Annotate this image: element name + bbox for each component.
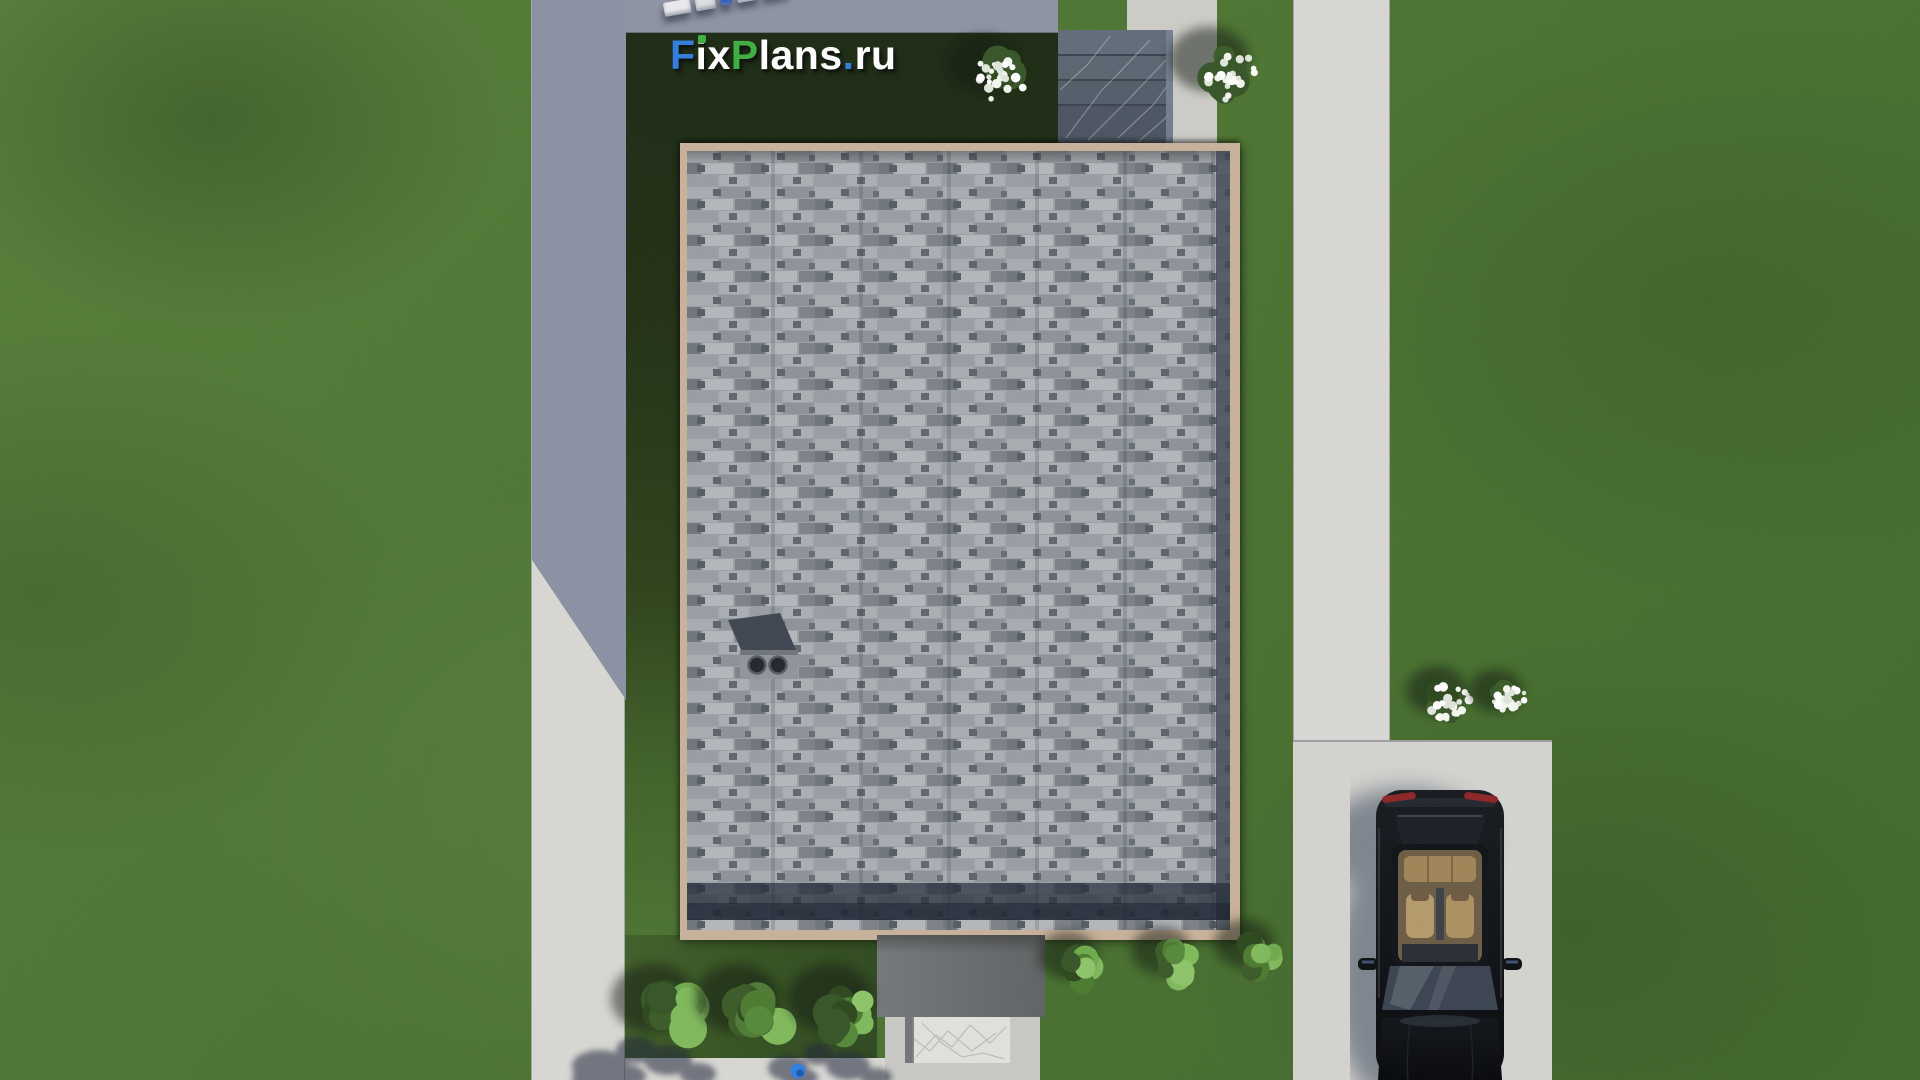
watermark-segment: F [670, 32, 696, 78]
site-render: FixPlans.ru [0, 0, 1920, 1080]
car-mirror-left [1358, 958, 1378, 970]
car-rear-bench [1404, 856, 1476, 882]
chimney-top-face [728, 613, 796, 652]
truck-segment [694, 0, 716, 11]
chimney-flue [749, 657, 766, 674]
car-rear-window [1394, 814, 1486, 844]
chimney-flue [770, 657, 787, 674]
watermark: FixPlans.ru [670, 32, 970, 82]
watermark-i-dot [698, 35, 706, 43]
house-roof [680, 143, 1240, 940]
watermark-segment: . [843, 32, 855, 78]
stone-slab [912, 1017, 1010, 1063]
car-center-console [1436, 888, 1444, 940]
car [1350, 748, 1580, 1080]
entrance-porch [877, 935, 1045, 1017]
watermark-segment: P [731, 32, 759, 78]
watermark-segment: lans [759, 32, 843, 78]
house-shadow-on-path [532, 0, 626, 700]
chimney [720, 608, 805, 686]
truck-segment [719, 0, 733, 6]
watermark-segment: ru [855, 32, 897, 78]
car-mirror-right [1502, 958, 1522, 970]
stone-steps [1058, 30, 1173, 143]
roof-shingles [687, 151, 1230, 930]
bottom-walk-path [625, 1058, 890, 1080]
car-dashboard [1402, 944, 1478, 962]
porch-shadow [905, 1017, 914, 1063]
roof-right-edge-shadow [1216, 151, 1230, 930]
left-walk-path [531, 0, 625, 1080]
right-walk-path [1293, 0, 1390, 745]
car-interior [1398, 850, 1482, 962]
car-hood [1378, 1018, 1502, 1080]
entry-walkway [1173, 0, 1217, 143]
